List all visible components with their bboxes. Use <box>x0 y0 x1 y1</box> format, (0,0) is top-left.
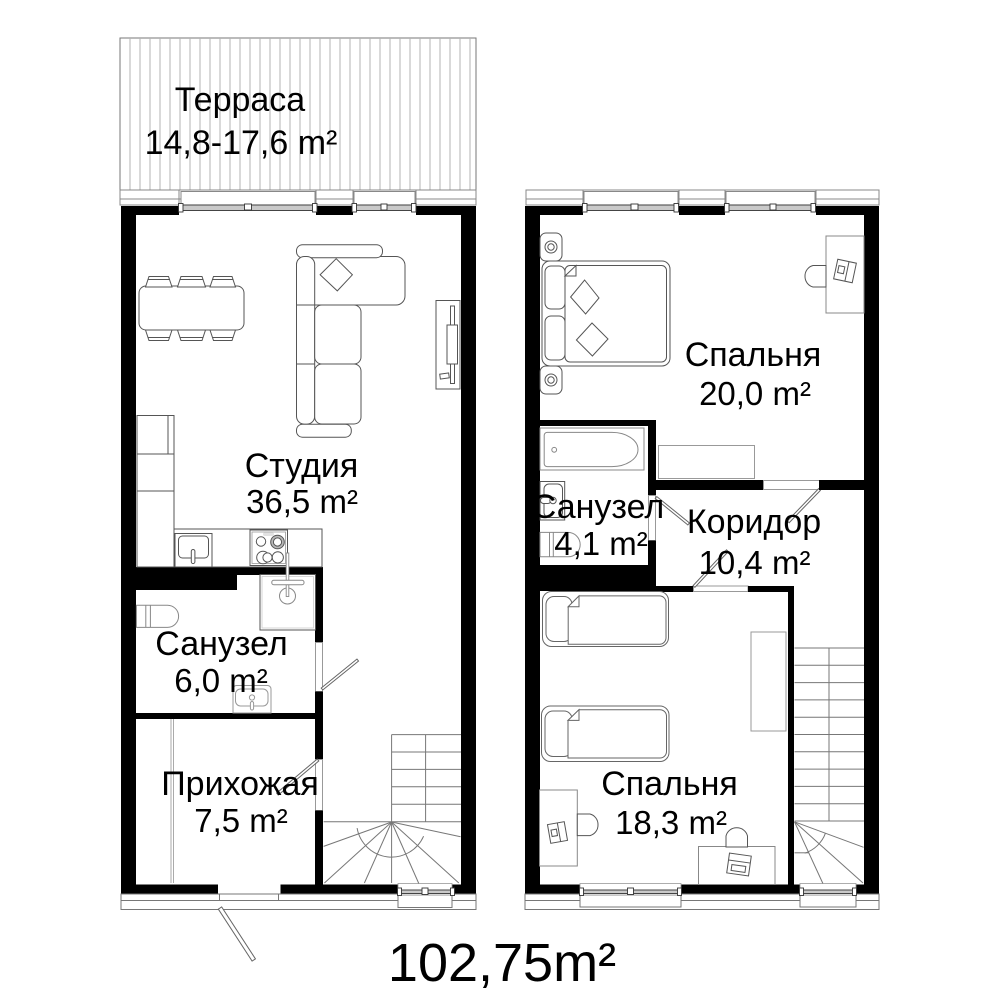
svg-text:7,5 m²: 7,5 m² <box>194 802 288 839</box>
svg-text:14,8-17,6 m²: 14,8-17,6 m² <box>145 124 338 162</box>
svg-text:Санузел: Санузел <box>155 625 287 663</box>
svg-text:6,0 m²: 6,0 m² <box>174 662 268 699</box>
svg-text:102,75m²: 102,75m² <box>388 933 616 993</box>
svg-text:18,3 m²: 18,3 m² <box>615 804 727 841</box>
svg-text:Прихожая: Прихожая <box>161 765 319 803</box>
svg-text:36,5 m²: 36,5 m² <box>246 483 358 520</box>
svg-text:Спальня: Спальня <box>601 765 738 803</box>
svg-text:Санузел: Санузел <box>532 488 664 526</box>
svg-text:4,1 m²: 4,1 m² <box>554 525 648 562</box>
svg-text:Терраса: Терраса <box>175 81 305 119</box>
svg-text:20,0 m²: 20,0 m² <box>699 375 811 412</box>
svg-text:10,4 m²: 10,4 m² <box>699 544 811 581</box>
svg-text:Коридор: Коридор <box>687 503 821 541</box>
svg-text:Спальня: Спальня <box>685 336 822 374</box>
svg-text:Студия: Студия <box>245 447 359 485</box>
